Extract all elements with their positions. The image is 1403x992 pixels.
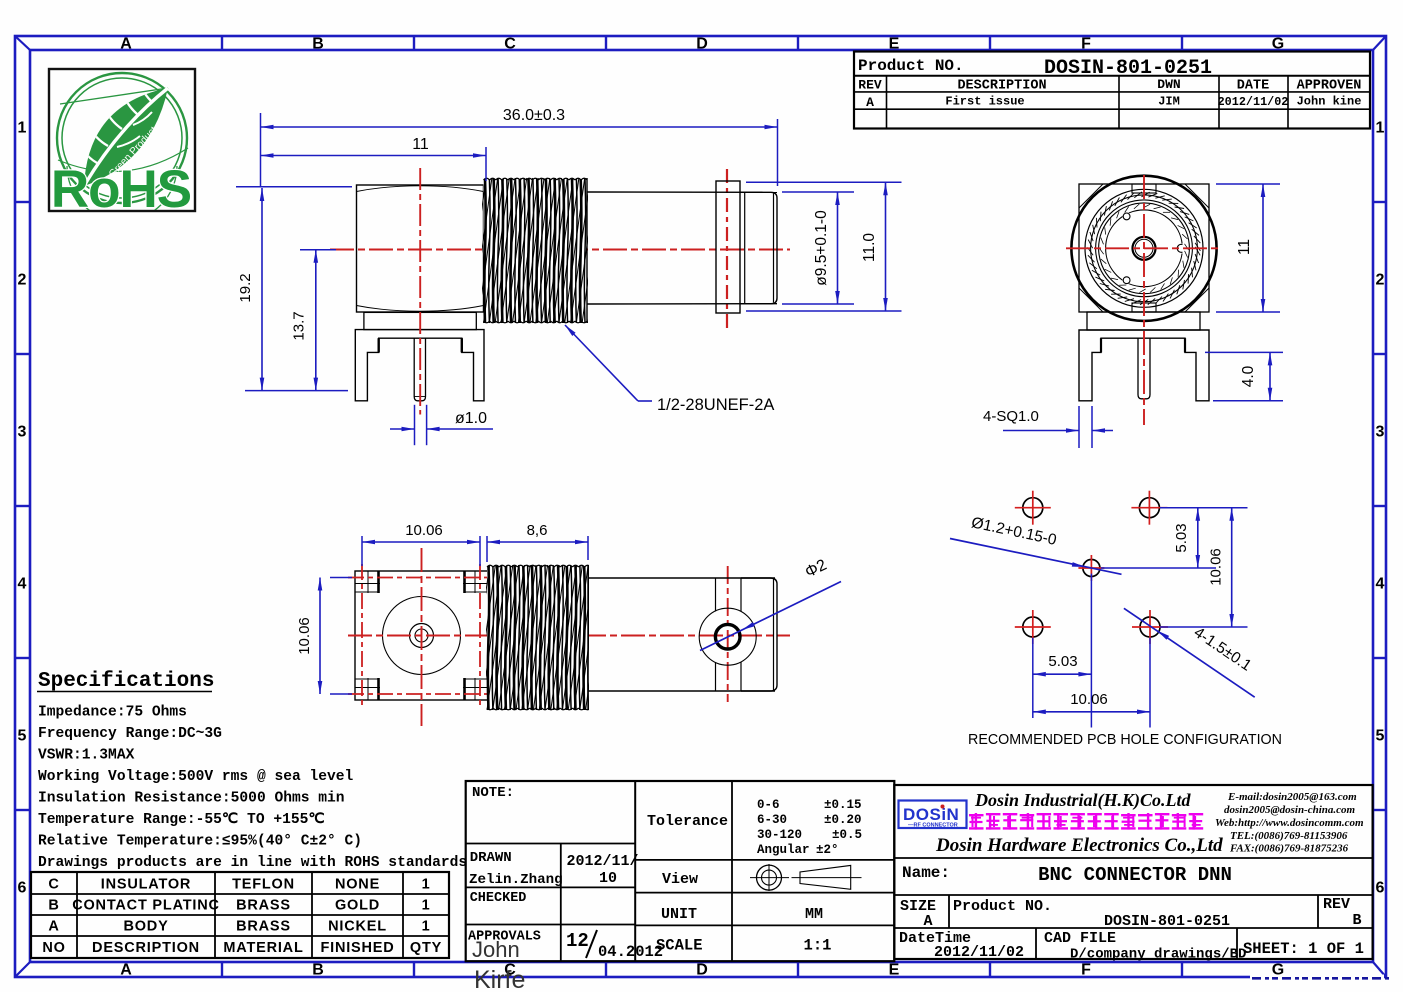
svg-text:13.7: 13.7 [291,311,308,340]
svg-text:INSULATOR: INSULATOR [101,877,191,893]
svg-text:11.0: 11.0 [861,233,878,262]
svg-text:1: 1 [422,919,431,935]
svg-text:SHEET: 1 OF 1: SHEET: 1 OF 1 [1243,940,1364,958]
svg-text:G: G [1272,36,1284,53]
svg-text:NICKEL: NICKEL [328,919,387,935]
svg-text:A: A [923,913,932,930]
svg-text:View: View [662,871,698,888]
svg-text:Working Voltage:500V rms @ sea: Working Voltage:500V rms @ sea level [38,769,354,785]
svg-text:A: A [120,962,132,979]
svg-text:1: 1 [422,877,431,893]
svg-text:Product NO.: Product NO. [858,57,964,75]
svg-text:2012/11/: 2012/11/ [567,853,639,870]
svg-text:NONE: NONE [335,877,380,893]
svg-text:DRAWN: DRAWN [470,850,512,866]
svg-text:2012/11/02: 2012/11/02 [934,944,1024,961]
svg-text:Dosin Hardware Electronics Co.: Dosin Hardware Electronics Co.,Ltd [935,835,1223,856]
svg-text:2: 2 [18,272,27,289]
svg-text:QTY: QTY [410,940,442,956]
svg-text:4-1.5±0.1: 4-1.5±0.1 [1191,624,1255,675]
svg-text:8,6: 8,6 [527,522,548,539]
svg-text:DESCRIPTION: DESCRIPTION [957,79,1046,94]
svg-text:—RF CONNECTOR: —RF CONNECTOR [908,823,958,829]
svg-text:TEL:(0086)769-81153906: TEL:(0086)769-81153906 [1230,830,1348,842]
svg-text:10.06: 10.06 [1070,691,1108,708]
svg-text:6-30: 6-30 [757,813,787,827]
svg-text:CHECKED: CHECKED [470,891,527,906]
svg-text:B: B [1352,912,1361,929]
svg-text:0-6: 0-6 [757,798,780,812]
svg-text:FINISHED: FINISHED [320,940,394,956]
svg-text:BODY: BODY [123,919,168,935]
svg-text:30-120: 30-120 [757,828,802,842]
svg-text:Drawings products are in line: Drawings products are in line with ROHS … [38,855,467,871]
svg-text:1: 1 [422,898,431,914]
svg-text:John: John [472,937,520,962]
svg-text:1: 1 [1376,120,1385,137]
svg-text:B: B [312,36,324,53]
svg-text:Specifications: Specifications [38,670,214,693]
svg-text:NO: NO [42,940,65,956]
svg-text:REV: REV [858,78,882,93]
svg-text:A: A [866,95,874,110]
svg-text:G: G [1272,962,1284,979]
svg-text:UNIT: UNIT [661,906,697,923]
svg-text:SCALE: SCALE [656,937,703,955]
svg-text:BRASS: BRASS [236,898,291,914]
svg-text:Zelin.Zhang: Zelin.Zhang [469,872,563,888]
svg-text:±0.15: ±0.15 [824,798,862,812]
svg-text:FAX:(0086)769-81875236: FAX:(0086)769-81875236 [1229,843,1349,855]
svg-text:DOSIN-801-0251: DOSIN-801-0251 [1104,913,1230,930]
svg-text:VSWR:1.3MAX: VSWR:1.3MAX [38,748,135,764]
svg-text:5.03: 5.03 [1048,653,1077,670]
svg-text:B: B [312,962,324,979]
svg-text:11: 11 [412,136,429,153]
svg-text:BRASS: BRASS [236,919,291,935]
svg-text:C: C [504,36,516,53]
svg-text:Kirfe: Kirfe [474,966,525,992]
svg-text:10.06: 10.06 [1208,548,1225,586]
svg-text:10.06: 10.06 [296,617,313,655]
svg-text:D/company drawings/BD: D/company drawings/BD [1070,947,1246,963]
svg-text:12: 12 [566,930,589,952]
svg-text:TEFLON: TEFLON [232,877,295,893]
svg-text:MATERIAL: MATERIAL [223,940,303,956]
svg-text:Angular: Angular [757,843,810,857]
svg-text:Ø1.2+0.15-0: Ø1.2+0.15-0 [970,514,1059,549]
svg-text:B: B [48,898,59,914]
svg-text:±0.20: ±0.20 [824,813,862,827]
svg-text:3: 3 [18,424,27,441]
svg-text:DOSiN: DOSiN [903,805,959,824]
svg-text:Product NO.: Product NO. [953,898,1052,915]
svg-text:11: 11 [1236,239,1253,255]
svg-text:DOSIN-801-0251: DOSIN-801-0251 [1044,57,1212,80]
svg-text:2012/11/02: 2012/11/02 [1218,95,1289,109]
svg-text:1:1: 1:1 [804,937,832,955]
svg-text:dosin2005@dosin-china.com: dosin2005@dosin-china.com [1224,804,1356,816]
svg-text:4.0: 4.0 [1240,365,1257,387]
svg-text:DESCRIPTION: DESCRIPTION [92,940,200,956]
svg-text:F: F [1081,36,1091,53]
svg-text:BNC CONNECTOR DNN: BNC CONNECTOR DNN [1038,864,1232,886]
svg-text:APPROVEN: APPROVEN [1297,79,1362,94]
svg-text:D: D [696,962,708,979]
svg-text:RECOMMENDED PCB HOLE CONFIGURA: RECOMMENDED PCB HOLE CONFIGURATION [968,732,1282,748]
svg-text:NOTE:: NOTE: [472,785,514,801]
svg-text:19.2: 19.2 [237,273,254,302]
svg-text:MM: MM [805,906,823,923]
svg-text:CONTACT PLATINC: CONTACT PLATINC [72,898,220,914]
svg-text:REV: REV [1323,896,1350,913]
svg-text:36.0±0.3: 36.0±0.3 [503,107,565,124]
svg-text:Temperature Range:-55℃ TO +155: Temperature Range:-55℃ TO +155℃ [38,811,325,828]
svg-text:DWN: DWN [1157,77,1180,92]
svg-text:10.06: 10.06 [405,522,443,539]
svg-text:5.03: 5.03 [1173,523,1190,552]
svg-text:E: E [889,962,900,979]
svg-text:10: 10 [599,870,617,887]
svg-text:Φ2: Φ2 [803,557,830,582]
svg-text:John kine: John kine [1297,95,1362,109]
svg-text:ø1.0: ø1.0 [455,410,487,427]
svg-text:Relative Temperature:≤95%(40°: Relative Temperature:≤95%(40° C±2° C) [38,834,362,850]
svg-text:CAD FILE: CAD FILE [1044,930,1116,947]
svg-text:F: F [1081,962,1091,979]
svg-text:5: 5 [1376,728,1385,745]
svg-text:±0.5: ±0.5 [832,828,862,842]
svg-text:3: 3 [1376,424,1385,441]
svg-text:GOLD: GOLD [335,898,380,914]
svg-text:Frequency Range:DC~3G: Frequency Range:DC~3G [38,726,222,742]
svg-text:E-mail:dosin2005@163.com: E-mail:dosin2005@163.com [1227,791,1357,803]
svg-text:E: E [889,36,900,53]
svg-text:Insulation Resistance:5000 Ohm: Insulation Resistance:5000 Ohms min [38,791,345,807]
svg-text:6: 6 [1376,880,1385,897]
svg-text:04.2012: 04.2012 [598,943,663,961]
svg-text:4: 4 [1376,576,1385,593]
svg-text:DATE: DATE [1237,79,1269,94]
svg-text:1: 1 [18,120,27,137]
svg-text:D: D [696,36,708,53]
svg-text:A: A [48,919,59,935]
svg-text:Tolerance: Tolerance [647,813,728,830]
svg-text:±2°: ±2° [816,843,839,857]
svg-text:JIM: JIM [1158,95,1180,109]
svg-text:Name:: Name: [902,864,950,882]
svg-text:Web:http://www.dosincomm.com: Web:http://www.dosincomm.com [1215,817,1364,829]
svg-text:4: 4 [18,576,27,593]
svg-text:1/2-28UNEF-2A: 1/2-28UNEF-2A [657,396,774,414]
svg-text:5: 5 [18,728,27,745]
svg-text:First issue: First issue [945,95,1024,109]
svg-text:2: 2 [1376,272,1385,289]
svg-text:ø9.5+0.1-0: ø9.5+0.1-0 [813,210,830,286]
svg-text:4-SQ1.0: 4-SQ1.0 [983,408,1039,425]
svg-text:C: C [48,877,59,893]
svg-text:A: A [120,36,132,53]
svg-text:Impedance:75 Ohms: Impedance:75 Ohms [38,705,187,721]
svg-text:Dosin Industrial(H.K)Co.Ltd: Dosin Industrial(H.K)Co.Ltd [974,790,1192,811]
svg-text:6: 6 [18,880,27,897]
